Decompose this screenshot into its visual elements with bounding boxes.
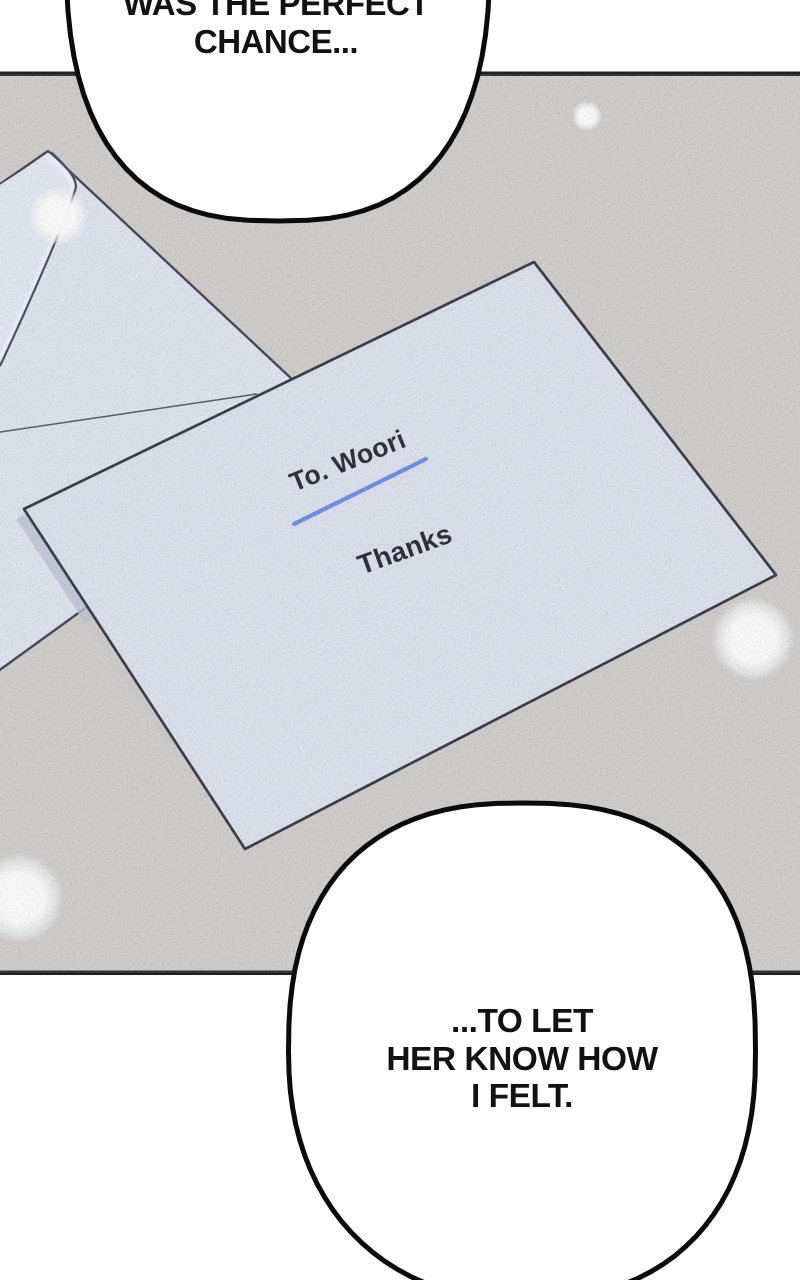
svg-text:I FELT.: I FELT.	[471, 1078, 573, 1115]
svg-text:WAS THE PERFECT: WAS THE PERFECT	[123, 0, 429, 22]
svg-text:HER KNOW HOW: HER KNOW HOW	[386, 1041, 658, 1078]
svg-text:CHANCE...: CHANCE...	[194, 23, 358, 60]
svg-text:...TO LET: ...TO LET	[451, 1003, 594, 1040]
